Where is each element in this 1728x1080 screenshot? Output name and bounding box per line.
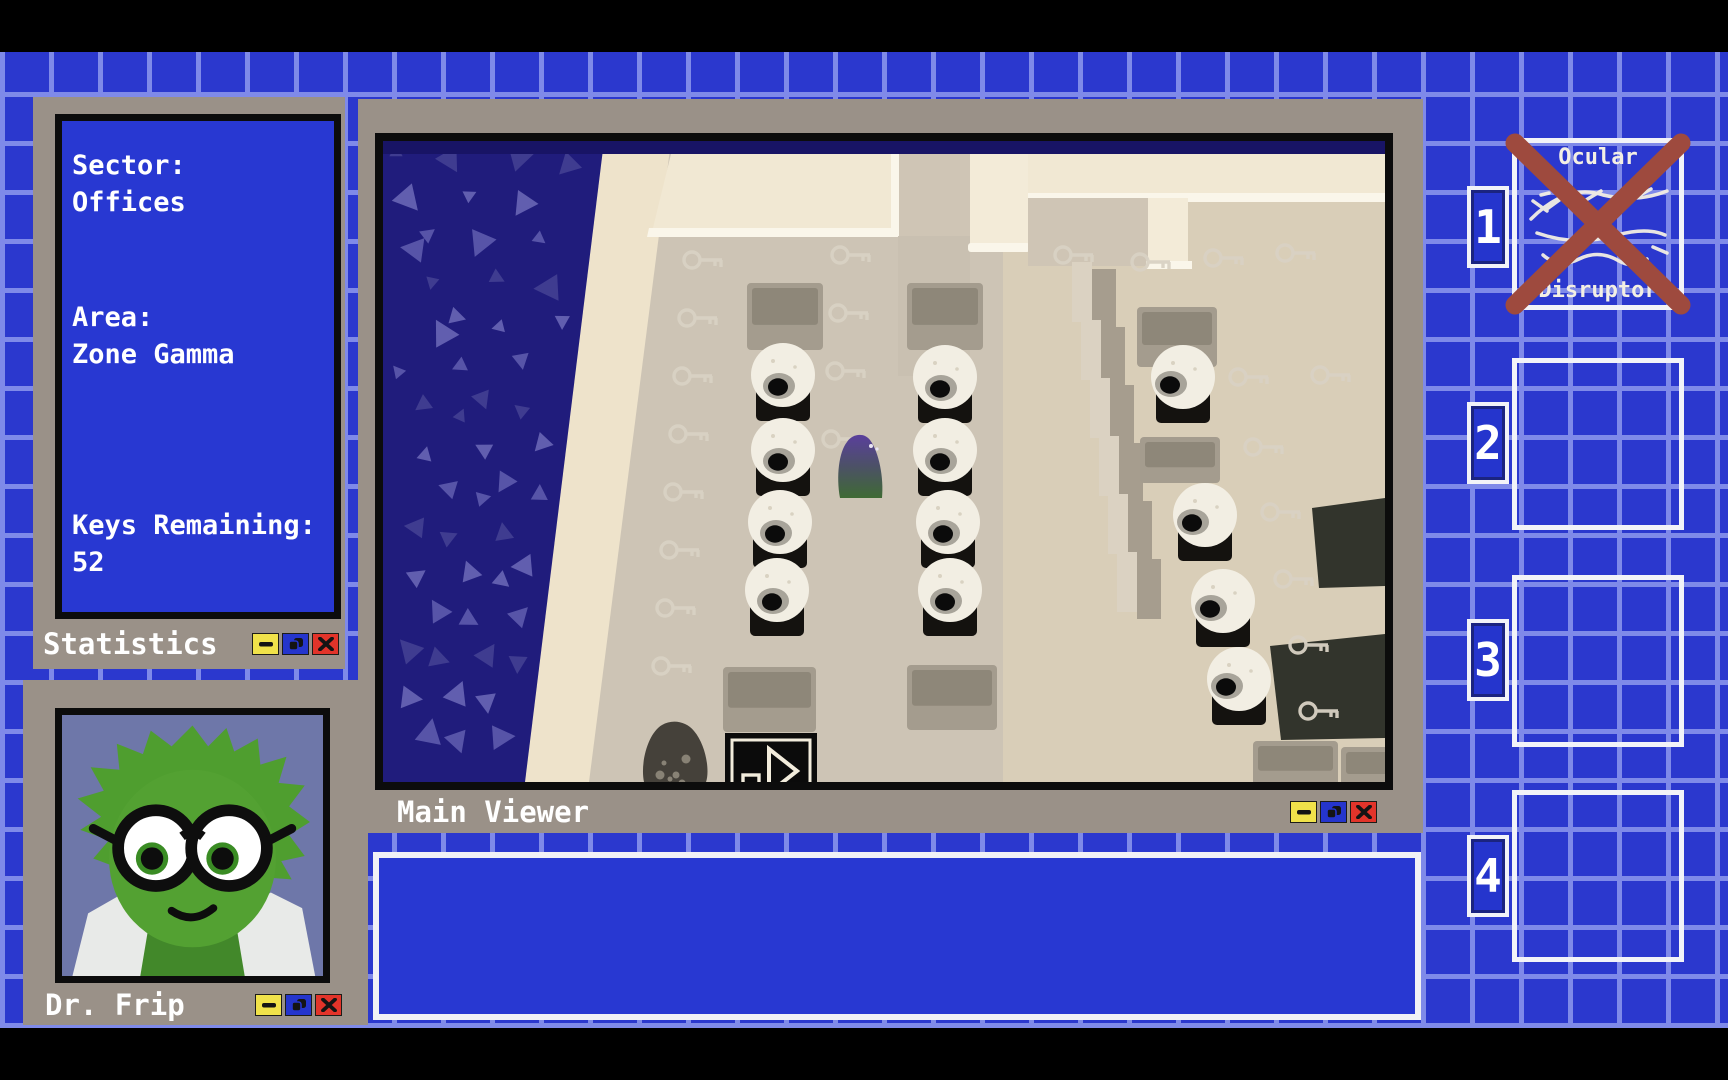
viewer-title-bar: Main Viewer	[358, 790, 1423, 833]
keys-remaining-label: Keys Remaining:	[72, 510, 316, 541]
slot-2-number: 2	[1467, 402, 1509, 484]
inventory-slot-2[interactable]	[1512, 358, 1684, 530]
item-ocular-disruptor[interactable]: Ocular Disruptor	[1517, 143, 1679, 305]
minimize-button[interactable]	[252, 633, 279, 655]
eyeball-creature	[918, 558, 982, 636]
wall-step	[1117, 552, 1137, 612]
sector-field: Sector:Offices	[72, 147, 186, 221]
eyeball-creature	[751, 343, 815, 421]
close-button[interactable]	[315, 994, 342, 1016]
restore-button[interactable]	[282, 633, 309, 655]
game-screen: Sector:Offices Area:Zone Gamma Keys Rema…	[0, 0, 1728, 1080]
main-viewer-window: Main Viewer	[358, 99, 1423, 833]
dark-desk	[1312, 498, 1385, 588]
statistics-title-bar: Statistics	[33, 619, 345, 669]
message-panel	[373, 852, 1421, 1020]
eyeball-creature	[916, 490, 980, 568]
keys-remaining-value: 52	[72, 547, 105, 578]
viewer-frame	[375, 133, 1393, 790]
wall-step	[1090, 378, 1110, 438]
scene-top-strip	[383, 141, 1385, 154]
slot-3-number: 3	[1467, 619, 1509, 701]
statistics-window-title: Statistics	[43, 627, 218, 661]
sector-label: Sector:	[72, 150, 186, 181]
game-scene[interactable]	[383, 141, 1385, 782]
character-portrait-window: Dr. Frip	[23, 680, 368, 1025]
area-label: Area:	[72, 302, 153, 333]
close-button[interactable]	[312, 633, 339, 655]
restore-button[interactable]	[285, 994, 312, 1016]
portrait-window-title: Dr. Frip	[45, 988, 185, 1022]
minimize-button[interactable]	[1290, 801, 1317, 823]
window-controls	[252, 633, 339, 655]
eyeball-creature	[913, 418, 977, 496]
wall-left	[651, 154, 898, 236]
wall-step	[1072, 262, 1092, 322]
dr-frip-avatar	[62, 715, 323, 976]
eyeball-creature	[1151, 345, 1215, 423]
statistics-panel: Sector:Offices Area:Zone Gamma Keys Rema…	[55, 114, 341, 619]
eyeball-creature	[1191, 569, 1255, 647]
eyeball-creature	[751, 418, 815, 496]
viewer-window-title: Main Viewer	[397, 795, 589, 829]
crossed-out-x-icon	[1507, 133, 1689, 315]
window-controls	[1290, 801, 1377, 823]
inventory-slot-4[interactable]	[1512, 790, 1684, 962]
sector-value: Offices	[72, 187, 186, 218]
eyeball-creature	[748, 490, 812, 568]
wall-right	[1028, 154, 1385, 198]
restore-button[interactable]	[1320, 801, 1347, 823]
inventory-slot-1[interactable]: Ocular Disruptor	[1512, 138, 1684, 310]
area-value: Zone Gamma	[72, 339, 235, 370]
eyeball-creature	[913, 345, 977, 423]
slot-1-number: 1	[1467, 186, 1509, 268]
keys-remaining-field: Keys Remaining:52	[72, 507, 316, 581]
eyeball-creature	[745, 558, 809, 636]
wall-step	[1108, 494, 1128, 554]
wall-pillar	[970, 154, 1028, 250]
wall-step	[1081, 320, 1101, 380]
slot-4-number: 4	[1467, 835, 1509, 917]
statistics-window: Sector:Offices Area:Zone Gamma Keys Rema…	[33, 97, 345, 669]
window-controls	[255, 994, 342, 1016]
eyeball-creature	[1173, 483, 1237, 561]
eyeball-creature	[1207, 647, 1271, 725]
wall-step	[1099, 436, 1119, 496]
area-field: Area:Zone Gamma	[72, 299, 235, 373]
inventory-slot-3[interactable]	[1512, 575, 1684, 747]
corridor	[898, 154, 970, 236]
dr-frip-portrait	[55, 708, 330, 983]
portrait-title-bar: Dr. Frip	[23, 985, 368, 1025]
close-button[interactable]	[1350, 801, 1377, 823]
minimize-button[interactable]	[255, 994, 282, 1016]
